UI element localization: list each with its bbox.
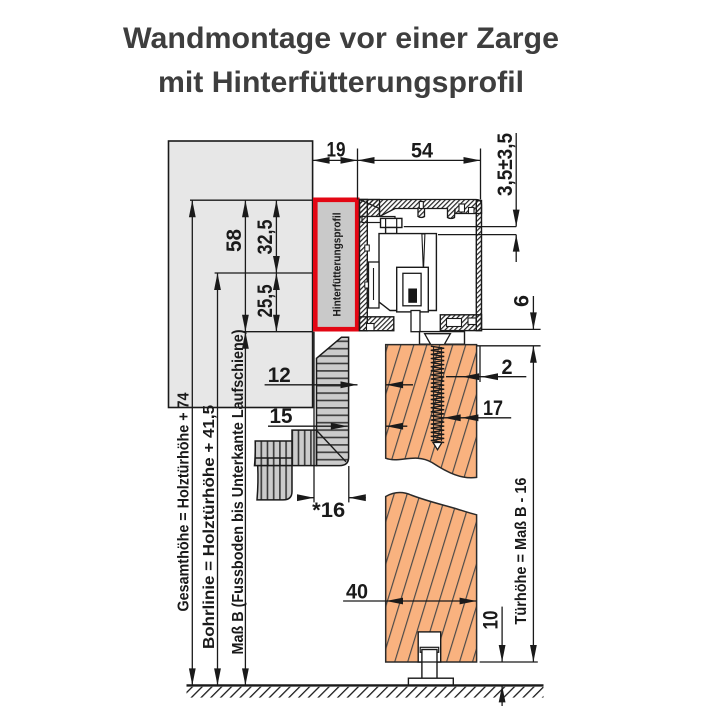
svg-text:54: 54 xyxy=(411,140,433,163)
svg-text:12: 12 xyxy=(268,364,291,387)
svg-text:10: 10 xyxy=(480,611,503,630)
svg-text:mit Hinterfütterungsprofil: mit Hinterfütterungsprofil xyxy=(158,66,524,99)
svg-text:58: 58 xyxy=(223,229,246,252)
svg-text:Türhöhe = Maß B - 16: Türhöhe = Maß B - 16 xyxy=(513,477,530,624)
svg-text:Wandmontage vor einer Zarge: Wandmontage vor einer Zarge xyxy=(123,22,559,55)
svg-text:19: 19 xyxy=(327,139,346,162)
svg-text:6: 6 xyxy=(511,295,534,307)
svg-text:15: 15 xyxy=(270,405,293,428)
svg-text:Bohrlinie = Holztürhöhe + 41,5: Bohrlinie = Holztürhöhe + 41,5 xyxy=(201,405,218,649)
svg-text:32,5: 32,5 xyxy=(254,219,277,254)
svg-text:25,5: 25,5 xyxy=(254,284,277,317)
svg-text:17: 17 xyxy=(483,397,503,420)
svg-text:Hinterfütterungsprofil: Hinterfütterungsprofil xyxy=(332,213,344,317)
svg-text:40: 40 xyxy=(346,581,368,604)
svg-text:*16: *16 xyxy=(312,499,345,522)
svg-text:Gesamthöhe = Holztürhöhe + 74: Gesamthöhe = Holztürhöhe + 74 xyxy=(176,392,193,611)
svg-text:3,5±3,5: 3,5±3,5 xyxy=(494,133,517,196)
svg-text:Maß B (Fussboden bis Unterkant: Maß B (Fussboden bis Unterkante Laufschi… xyxy=(230,330,247,655)
svg-text:2: 2 xyxy=(502,356,513,379)
